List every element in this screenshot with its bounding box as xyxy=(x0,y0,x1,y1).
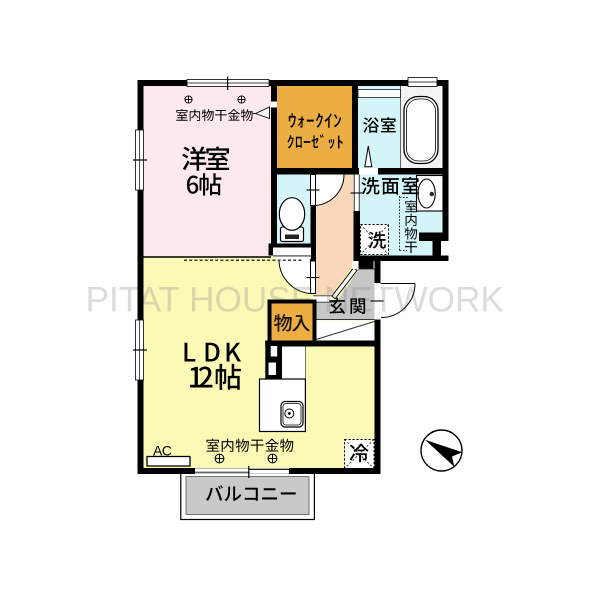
svg-text:AC: AC xyxy=(153,443,172,459)
